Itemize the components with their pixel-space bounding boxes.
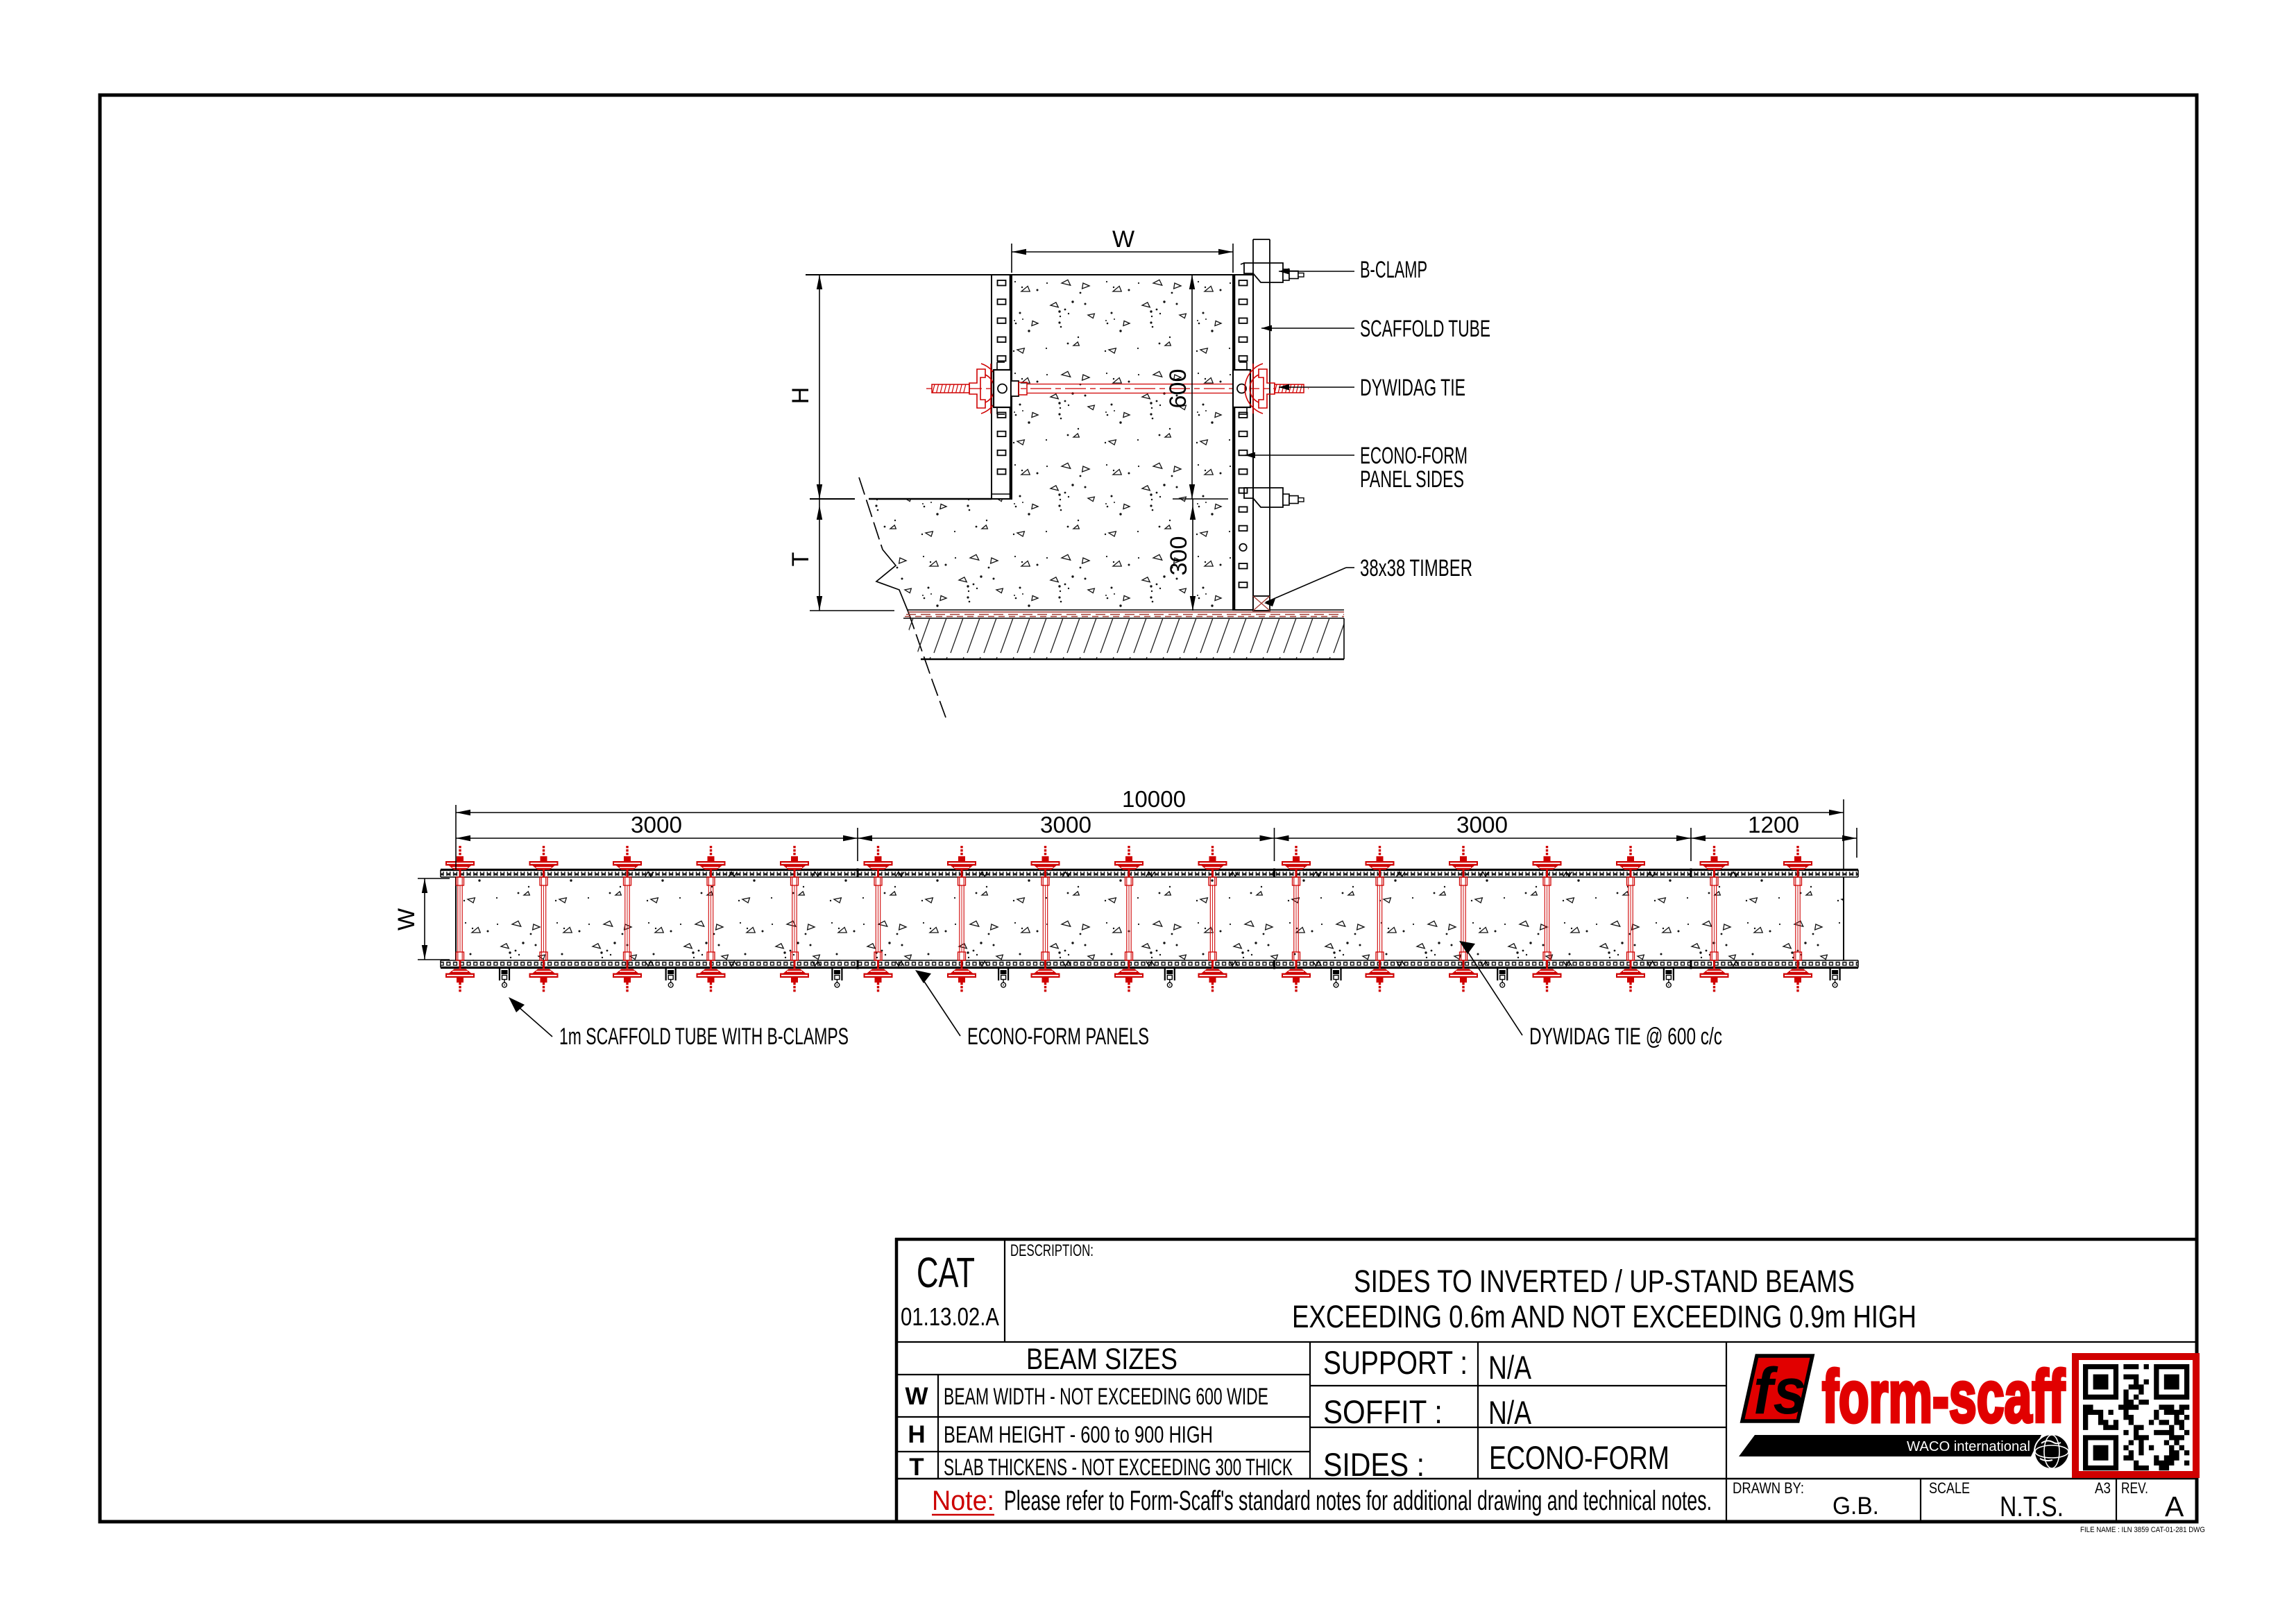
svg-text:A: A (2165, 1490, 2184, 1522)
svg-text:W: W (1112, 226, 1134, 253)
svg-text:3000: 3000 (631, 812, 682, 838)
svg-text:REV.: REV. (2121, 1479, 2148, 1497)
svg-text:N/A: N/A (1488, 1349, 1532, 1386)
svg-text:38x38 TIMBER: 38x38 TIMBER (1360, 555, 1472, 581)
svg-text:1200: 1200 (1748, 812, 1799, 838)
svg-text:SIDES :: SIDES : (1323, 1446, 1425, 1483)
svg-text:SCALE: SCALE (1929, 1479, 1970, 1497)
svg-text:WACO international: WACO international (1907, 1439, 2030, 1454)
svg-text:SCAFFOLD TUBE: SCAFFOLD TUBE (1360, 316, 1490, 342)
svg-text:Please refer to Form-Scaff's s: Please refer to Form-Scaff's standard no… (1004, 1486, 1712, 1516)
svg-text:DRAWN BY:: DRAWN BY: (1733, 1479, 1804, 1497)
svg-text:3000: 3000 (1456, 812, 1508, 838)
svg-text:1m SCAFFOLD TUBE WITH B-CLAMPS: 1m SCAFFOLD TUBE WITH B-CLAMPS (559, 1023, 849, 1050)
svg-text:T: T (909, 1454, 924, 1481)
svg-text:01.13.02.A: 01.13.02.A (901, 1302, 999, 1331)
svg-text:BEAM SIZES: BEAM SIZES (1026, 1343, 1177, 1376)
svg-text:BEAM WIDTH - NOT EXCEEDING 600: BEAM WIDTH - NOT EXCEEDING 600 WIDE (944, 1384, 1268, 1410)
svg-text:B-CLAMP: B-CLAMP (1360, 257, 1427, 283)
svg-text:Note:: Note: (932, 1486, 994, 1516)
svg-text:A3: A3 (2095, 1479, 2111, 1497)
svg-text:BEAM HEIGHT - 600 to 900 HIGH: BEAM HEIGHT - 600 to 900 HIGH (944, 1422, 1213, 1448)
svg-text:SUPPORT :: SUPPORT : (1323, 1344, 1468, 1381)
svg-text:CAT: CAT (917, 1249, 975, 1296)
svg-text:FILE NAME : ILN 3859 CAT-01-28: FILE NAME : ILN 3859 CAT-01-281 DWG (2080, 1526, 2205, 1534)
svg-text:W: W (905, 1383, 928, 1410)
svg-text:G.B.: G.B. (1832, 1493, 1879, 1520)
svg-text:10000: 10000 (1122, 786, 1186, 812)
svg-text:600: 600 (1165, 369, 1191, 409)
svg-text:H: H (908, 1421, 925, 1448)
svg-text:T: T (788, 552, 814, 567)
svg-text:N/A: N/A (1488, 1394, 1532, 1431)
svg-text:H: H (788, 387, 814, 405)
svg-text:form-scaff: form-scaff (1822, 1356, 2065, 1438)
svg-text:DYWIDAG TIE: DYWIDAG TIE (1360, 375, 1465, 401)
svg-text:W: W (393, 908, 420, 931)
svg-text:ECONO-FORM PANELS: ECONO-FORM PANELS (967, 1023, 1149, 1050)
svg-text:DYWIDAG TIE @ 600 c/c: DYWIDAG TIE @ 600 c/c (1529, 1023, 1722, 1050)
svg-text:ECONO-FORM: ECONO-FORM (1489, 1439, 1669, 1476)
svg-text:300: 300 (1166, 536, 1192, 576)
svg-text:N.T.S.: N.T.S. (2000, 1490, 2064, 1522)
svg-text:SOFFIT :: SOFFIT : (1323, 1393, 1443, 1430)
svg-text:DESCRIPTION:: DESCRIPTION: (1010, 1241, 1094, 1260)
svg-text:PANEL SIDES: PANEL SIDES (1360, 466, 1464, 493)
svg-text:EXCEEDING 0.6m AND NOT EXCEEDI: EXCEEDING 0.6m AND NOT EXCEEDING 0.9m HI… (1292, 1299, 1916, 1334)
svg-text:3000: 3000 (1040, 812, 1091, 838)
svg-text:fs: fs (1753, 1354, 1806, 1428)
svg-text:SLAB THICKENS - NOT EXCEEDING: SLAB THICKENS - NOT EXCEEDING 300 THICK (944, 1454, 1293, 1481)
svg-text:SIDES TO INVERTED / UP-STAND B: SIDES TO INVERTED / UP-STAND BEAMS (1354, 1264, 1855, 1299)
svg-text:ECONO-FORM: ECONO-FORM (1360, 443, 1468, 469)
